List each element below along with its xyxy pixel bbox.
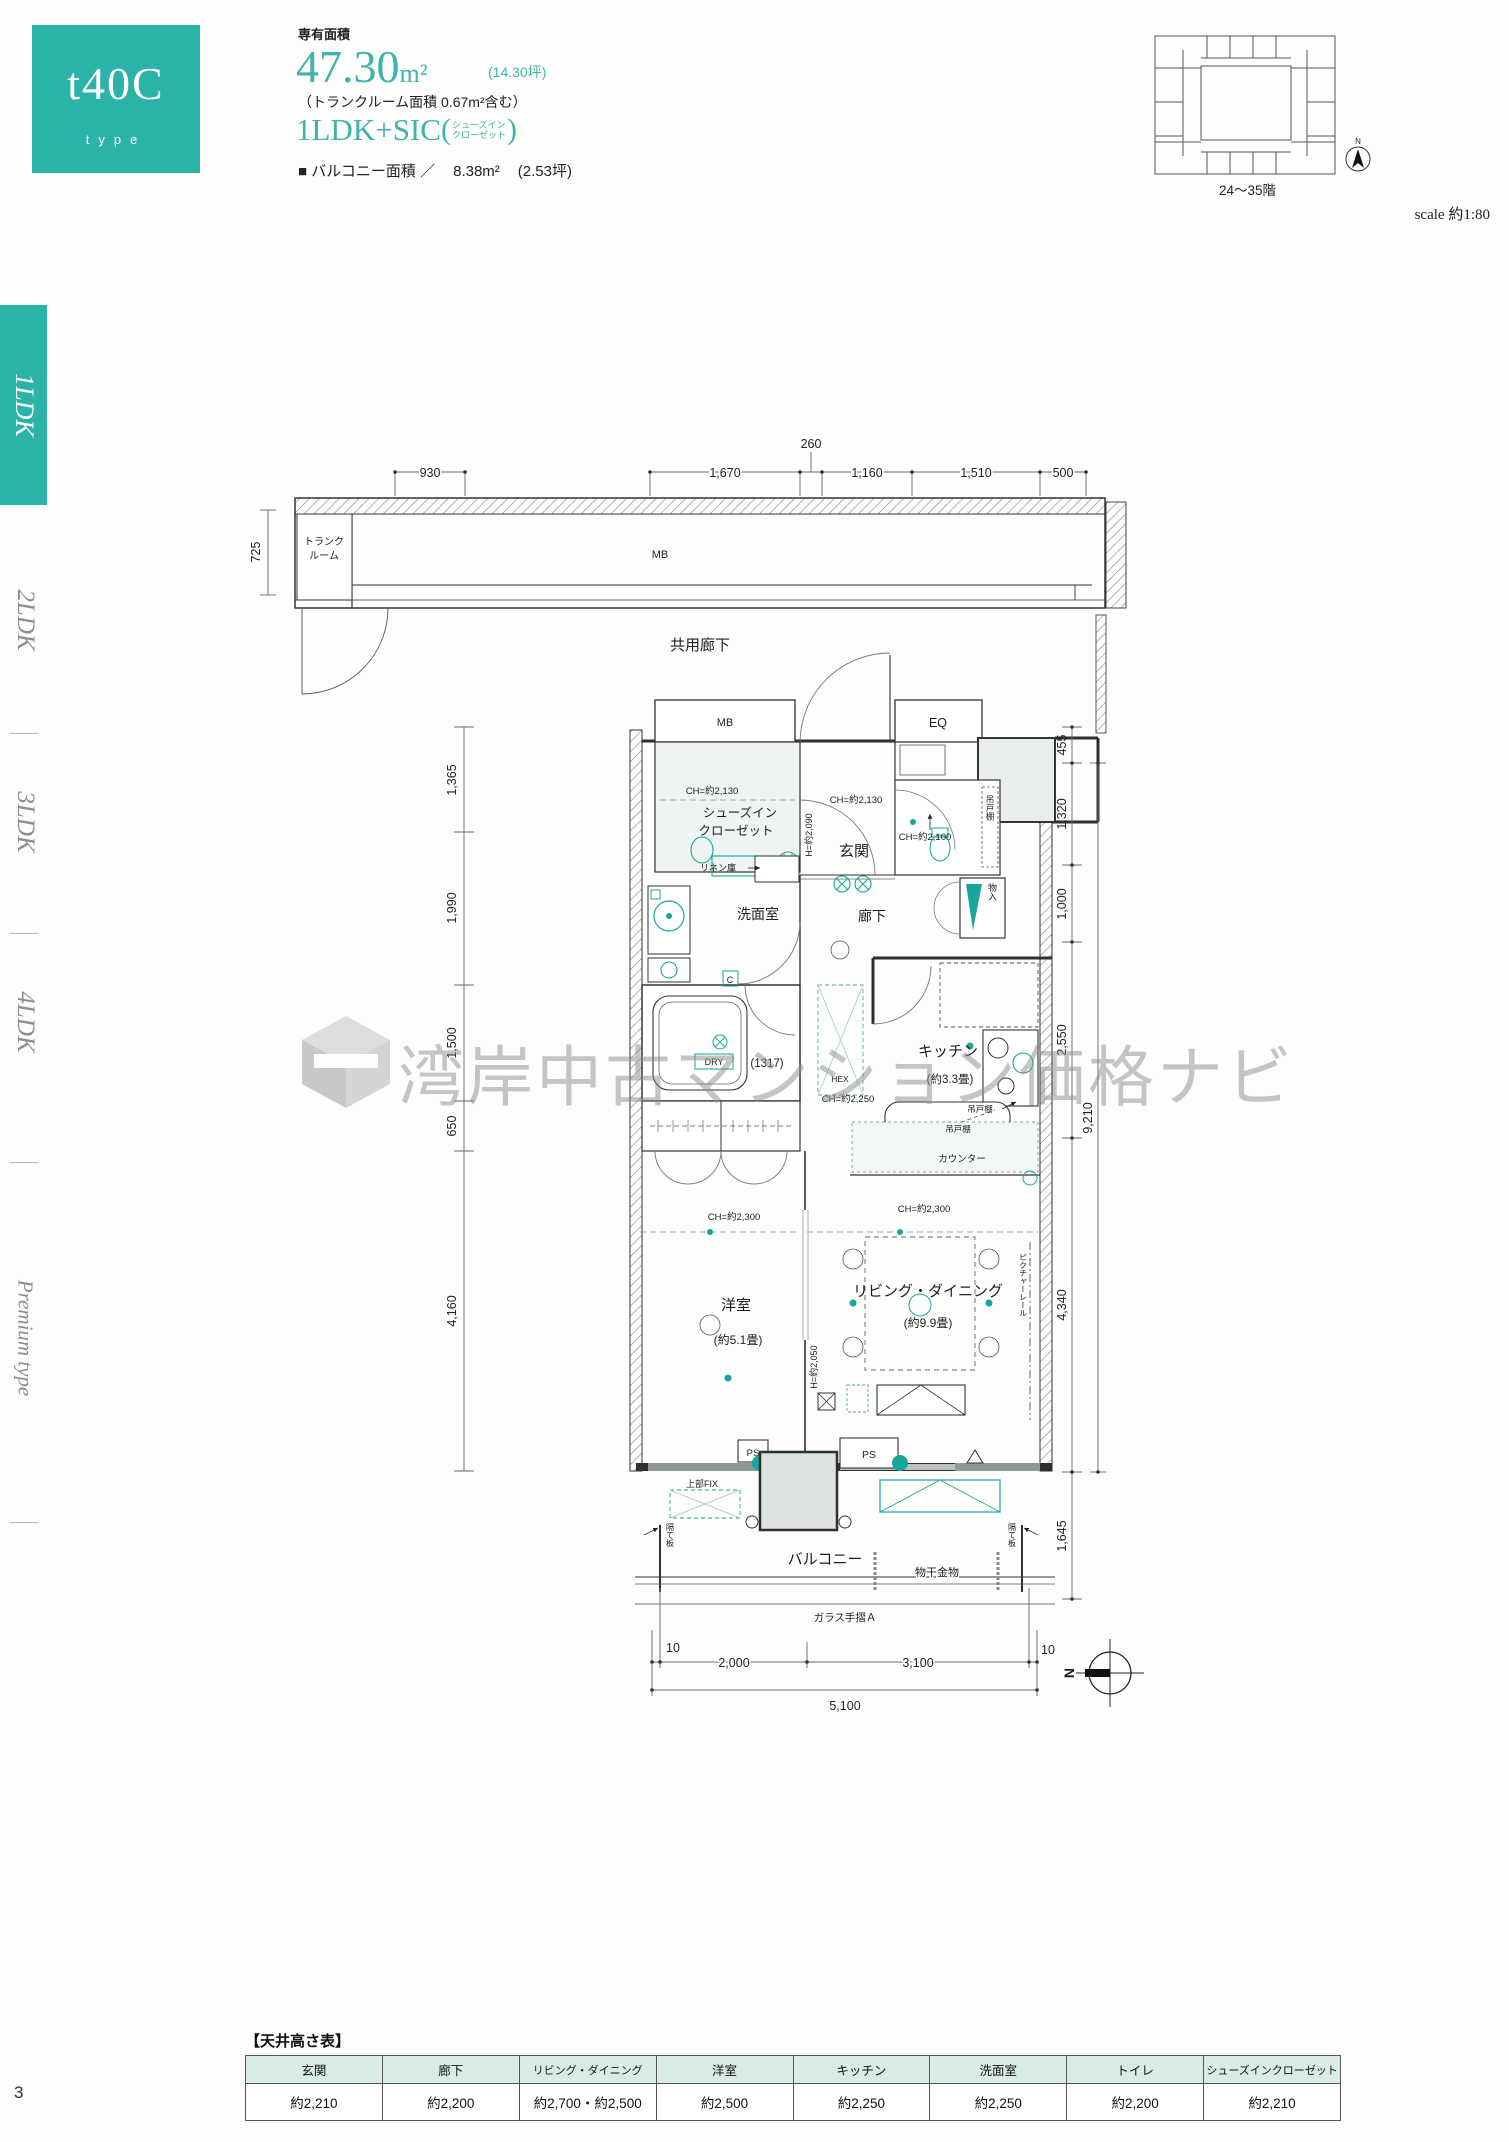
ld-label: リビング・ダイニング (853, 1283, 1003, 1300)
bath-c-mark: C (727, 975, 734, 985)
drying-fixture-label: 物干金物 (915, 1565, 959, 1579)
sidebar-item-premium[interactable]: Premium type (13, 1280, 38, 1396)
corridor-mb-label: MB (652, 549, 669, 561)
dim-455: 455 (1055, 735, 1069, 756)
dim-1320: 1,320 (1055, 798, 1069, 829)
right-dimension-lines (1062, 727, 1106, 1599)
ceiling-height-table: 【天井高さ表】 玄関 廊下 リビング・ダイニング 洋室 キッチン 洗面室 トイレ… (245, 2030, 1341, 2121)
dim-1670: 1,670 (709, 466, 740, 480)
upper-fix-label: 上部FIX (686, 1478, 718, 1489)
col-toilet: トイレ (1067, 2056, 1204, 2084)
glass-rail-label: ガラス手摺Ａ (814, 1611, 877, 1624)
dim-1645: 1,645 (1055, 1520, 1069, 1551)
val-toilet: 約2,200 (1067, 2084, 1204, 2121)
common-corridor (295, 498, 1126, 733)
sidebar-item-2ldk[interactable]: 2LDK (11, 589, 39, 650)
balcony-tsubo: (2.53坪) (518, 163, 572, 180)
unit-type-word: type (32, 132, 200, 147)
toilet-ceiling-height: CH=約2,100 (899, 831, 952, 843)
hallway-label: 廊下 (858, 908, 886, 924)
watermark-text: 湾岸中古マンション価格ナビ (398, 1024, 1295, 1120)
col-west: 洋室 (656, 2056, 793, 2084)
ps-label-2: PS (862, 1449, 876, 1461)
picture-rail-label: ピクチャーレール (1019, 1253, 1028, 1317)
layout-type: 1LDK+SIC (296, 112, 441, 148)
col-washroom: 洗面室 (930, 2056, 1067, 2084)
sic-ceiling-height: CH=約2,130 (686, 785, 739, 797)
balcony-label: ■ バルコニー面積 ／ (298, 163, 435, 180)
val-kitchen: 約2,250 (793, 2084, 930, 2121)
sic-label-1: シューズイン (703, 805, 777, 820)
col-kitchen: キッチン (793, 2056, 930, 2084)
entry-door-height: H=約2,090 (803, 813, 814, 856)
dim-1160: 1,160 (851, 466, 882, 480)
right-dimension-dots (1070, 725, 1100, 1601)
area-value: 47.30 (296, 41, 400, 92)
linen-box (755, 856, 799, 882)
entrance-door (800, 653, 890, 743)
keyplan-diagram: N (1145, 28, 1385, 178)
val-west: 約2,500 (656, 2084, 793, 2121)
unit-type-code: t40C (32, 57, 200, 110)
page-number: 3 (14, 2083, 23, 2103)
val-washroom: 約2,250 (930, 2084, 1067, 2121)
dim-4160: 4,160 (445, 1295, 459, 1326)
dim-1365: 1,365 (445, 764, 459, 795)
val-ld: 約2,700・約2,500 (519, 2084, 656, 2121)
ceiling-table-value-row: 約2,210 約2,200 約2,700・約2,500 約2,500 約2,25… (246, 2084, 1341, 2121)
dim-930: 930 (420, 466, 441, 480)
col-sic: シューズインクローゼット (1204, 2056, 1341, 2084)
dim-1000: 1,000 (1055, 888, 1069, 919)
vent-mark (967, 1450, 983, 1463)
balcony-value: 8.38m² (453, 163, 500, 180)
balcony-area-row: ■ バルコニー面積 ／8.38m²(2.53坪) (298, 160, 590, 181)
ld-door-height: H=約2,050 (808, 1345, 819, 1388)
dim-10-right: 10 (1041, 1643, 1055, 1657)
kitchen-counter-label: カウンター (938, 1154, 986, 1165)
west-ceiling-height: CH=約2,300 (708, 1211, 761, 1223)
layout-note: シューズインクローゼット (452, 120, 506, 140)
dim-260: 260 (801, 437, 822, 451)
dim-5100: 5,100 (829, 1699, 860, 1713)
ceiling-table-header-row: 玄関 廊下 リビング・ダイニング 洋室 キッチン 洗面室 トイレ シューズインク… (246, 2056, 1341, 2084)
dim-10-left: 10 (666, 1641, 680, 1655)
trunk-room-label: トランク (304, 536, 344, 548)
bottom-dimension-dots (650, 1660, 1039, 1692)
col-ld: リビング・ダイニング (519, 2056, 656, 2084)
keyplan-outline (1155, 36, 1335, 174)
linen-label: リネン庫 (700, 862, 736, 873)
partition-label-right: 隔て板 (1008, 1523, 1017, 1548)
storage-label: 物入 (987, 882, 997, 901)
washroom-label: 洗面室 (737, 906, 779, 922)
balcony (635, 1452, 1055, 1604)
west-room-size: (約5.1畳) (714, 1332, 763, 1347)
entry-ceiling-height: CH=約2,130 (830, 794, 883, 806)
eq-label: EQ (929, 716, 947, 730)
sidebar-divider (10, 1162, 38, 1163)
north-compass-icon: N (1346, 137, 1370, 171)
col-entry: 玄関 (246, 2056, 383, 2084)
sidebar-item-3ldk[interactable]: 3LDK (11, 791, 39, 852)
washroom (648, 875, 800, 985)
dim-3100: 3,100 (902, 1656, 933, 1670)
dim-1990: 1,990 (445, 892, 459, 923)
partition-label-left: 隔て板 (666, 1523, 675, 1548)
common-corridor-label: 共用廊下 (670, 637, 730, 654)
dim-2000: 2,000 (718, 1656, 749, 1670)
kitchen-hanging-2: 吊戸棚 (945, 1124, 971, 1134)
toilet-hanging-cabinet: 吊戸棚 (985, 795, 995, 821)
dim-1510: 1,510 (960, 466, 991, 480)
sidebar-item-4ldk[interactable]: 4LDK (11, 991, 39, 1052)
west-room-label: 洋室 (721, 1297, 751, 1314)
dim-4340: 4,340 (1055, 1289, 1069, 1320)
dim-500: 500 (1053, 466, 1074, 480)
unit-type-badge: t40C type (32, 25, 200, 173)
keyplan-caption: 24〜35階 (1160, 179, 1335, 199)
val-entry: 約2,210 (246, 2084, 383, 2121)
watermark-logo (296, 1010, 396, 1110)
scale-note: scale 約1:80 (1290, 203, 1490, 224)
sidebar-divider (10, 733, 38, 734)
sic-label-2: クローゼット (698, 824, 773, 838)
area-value-row: 47.30m² (296, 40, 428, 93)
trunk-note: （トランクルーム面積 0.67m²含む） (298, 92, 527, 112)
hall-downlight (831, 941, 849, 959)
brochure-page: { "page": {"number": "3"}, "header": { "… (0, 0, 1509, 2142)
balcony-label: バルコニー (788, 1551, 863, 1568)
wall-outlet (892, 1455, 908, 1471)
svg-text:N: N (1355, 137, 1361, 146)
dim-725: 725 (249, 542, 263, 563)
area-unit: m² (400, 59, 428, 88)
sidebar-divider (10, 1522, 38, 1523)
mb-label: MB (717, 717, 734, 729)
col-hall: 廊下 (382, 2056, 519, 2084)
sidebar-divider (10, 933, 38, 934)
plan-north-compass-icon: N (1061, 1639, 1144, 1707)
area-tsubo: (14.30坪) (488, 62, 546, 82)
val-hall: 約2,200 (382, 2084, 519, 2121)
ld-ceiling-height: CH=約2,300 (898, 1203, 951, 1215)
val-sic: 約2,210 (1204, 2084, 1341, 2121)
entry-label: 玄関 (839, 843, 869, 860)
layout-row: 1LDK+SIC(シューズインクローゼット) (296, 112, 517, 148)
plan-north-letter: N (1061, 1668, 1077, 1678)
sidebar-item-1ldk[interactable]: 1LDK (9, 373, 39, 437)
trunk-room-label2: ルーム (309, 550, 339, 562)
ld-size: (約9.9畳) (904, 1315, 953, 1330)
ceiling-table-title: 【天井高さ表】 (245, 2030, 1341, 2051)
